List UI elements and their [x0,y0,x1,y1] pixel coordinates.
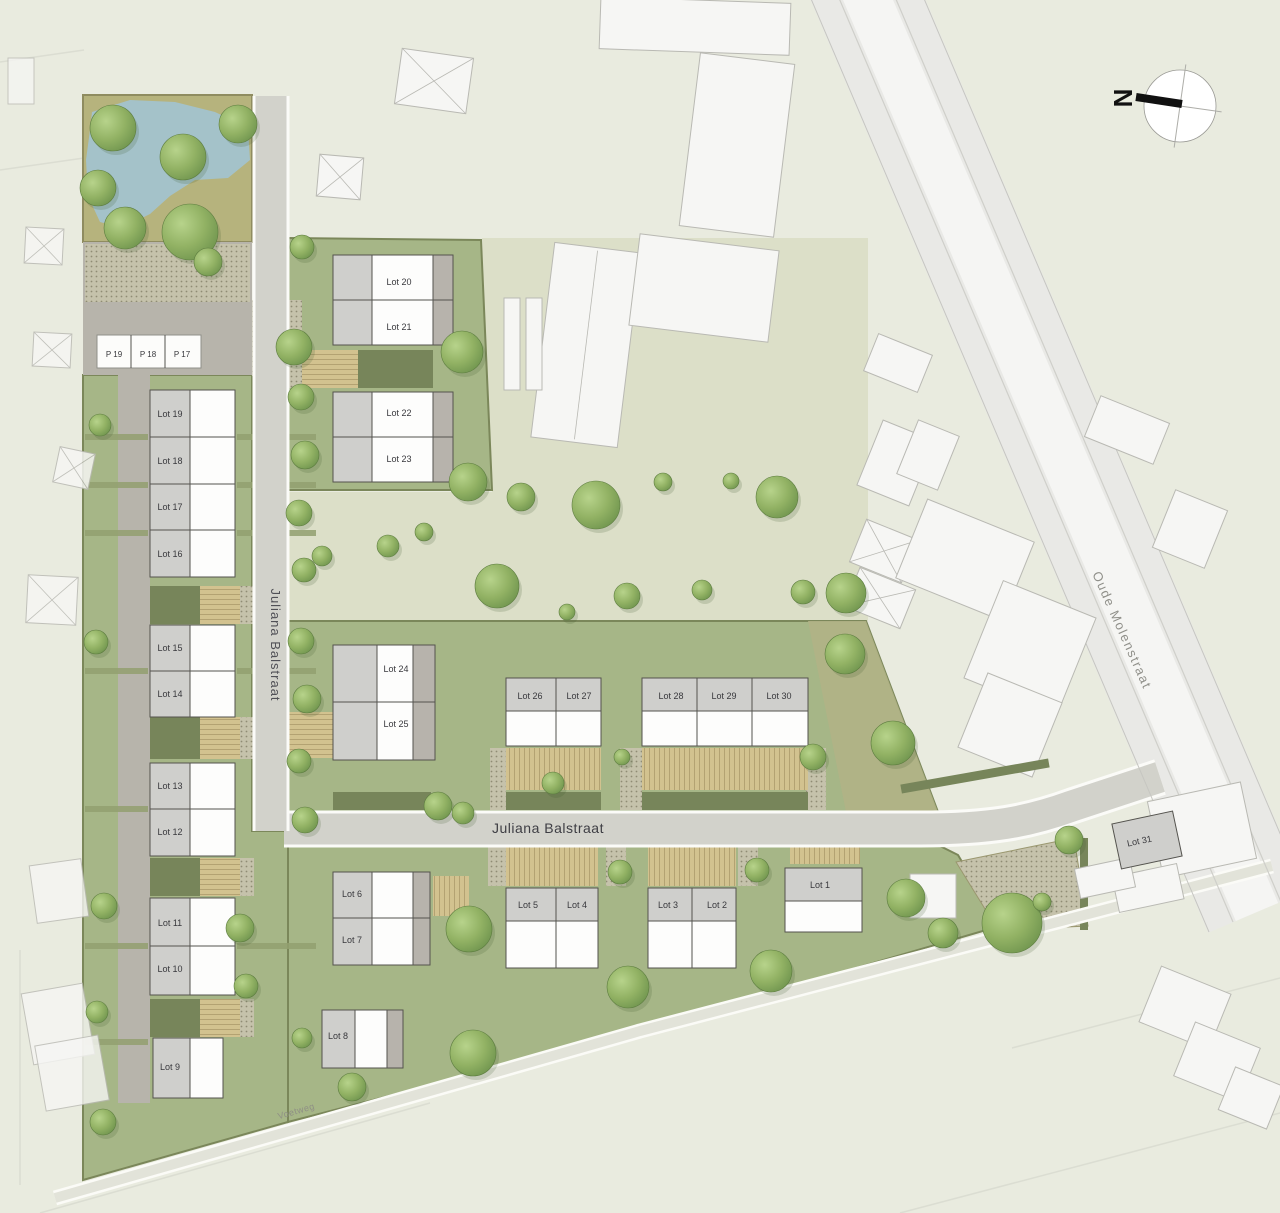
paver-area [85,244,250,302]
tree [292,558,316,582]
building-lot-1 [785,901,862,932]
street-label-horizontal: Juliana Balstraat [492,820,604,836]
tree [286,500,312,526]
tree [160,134,206,180]
tree [84,630,108,654]
building-lots-26-27 [506,711,601,746]
lot-label: Lot 13 [157,781,182,791]
existing-building [526,298,542,390]
tree [415,523,433,541]
deck [506,846,598,886]
existing-building [35,1035,109,1111]
gravel-strip [240,717,254,759]
existing-building [29,859,89,924]
tree [1055,826,1083,854]
deck [642,748,808,790]
building-lot-8 [355,1010,387,1068]
existing-building [599,0,791,55]
tree [542,772,564,794]
lot-label: Lot 26 [517,691,542,701]
tree [756,476,798,518]
lot-label: Lot 16 [157,549,182,559]
existing-building [32,332,72,368]
lot-label: Lot 10 [157,964,182,974]
north-label: N [1108,89,1138,108]
tree [507,483,535,511]
lot-label: Lot 17 [157,502,182,512]
tree [450,1030,496,1076]
tree [293,685,321,713]
tree [871,721,915,765]
tree [291,441,319,469]
lot-label: Lot 3 [658,900,678,910]
lot-label: Lot 30 [766,691,791,701]
tree [338,1073,366,1101]
parking-label: P 19 [106,350,123,359]
existing-building [8,58,34,104]
building-lots-28-30 [642,711,808,746]
tree [104,207,146,249]
tree [288,628,314,654]
lot-label: Lot 19 [157,409,182,419]
building-lot-8 [387,1010,403,1068]
existing-building [53,447,96,490]
tree [826,573,866,613]
lot-label: Lot 20 [386,277,411,287]
existing-building [26,575,78,626]
tree [226,914,254,942]
tree [89,414,111,436]
parking-label: P 18 [140,350,157,359]
lot-label: Lot 11 [158,918,182,928]
tree [90,105,136,151]
building-lots-5-4 [506,921,598,968]
tree [800,744,826,770]
tree [90,1109,116,1135]
tree [80,170,116,206]
hedge [333,792,431,810]
hedge [150,586,200,624]
lot-label: Lot 24 [383,664,408,674]
lot-label: Lot 18 [157,456,182,466]
lot-label: Lot 29 [711,691,736,701]
existing-building [629,234,779,342]
tree [654,473,672,491]
lot-label: Lot 14 [157,689,182,699]
deck [200,717,240,759]
site-plan: Lot 1Lot 2Lot 3Lot 4Lot 5Lot 6Lot 7Lot 8… [0,0,1280,1213]
gravel-strip [240,858,254,896]
lot-label: Lot 7 [342,935,362,945]
existing-building [679,53,794,237]
gravel-strip [240,999,254,1037]
deck [200,999,240,1037]
gravel-strip [490,748,506,810]
tree [475,564,519,608]
gravel-strip [240,586,254,624]
lot-label: Lot 5 [518,900,538,910]
tree [194,248,222,276]
tree [446,906,492,952]
existing-building [504,298,520,390]
lot-label: Lot 27 [566,691,591,701]
tree [887,879,925,917]
tree [91,893,117,919]
tree [928,918,958,948]
lot-label: Lot 1 [810,880,830,890]
lot-label: Lot 21 [386,322,411,332]
hedge [642,792,808,810]
tree [1033,893,1051,911]
lot-label: Lot 28 [658,691,683,701]
tree [607,966,649,1008]
parking-label: P 17 [174,350,191,359]
tree [614,749,630,765]
street-label-vertical: Juliana Balstraat [268,588,283,701]
tree [750,950,792,992]
lot-label: Lot 2 [707,900,727,910]
tree [559,604,575,620]
tree [692,580,712,600]
tree [723,473,739,489]
existing-building [316,154,363,200]
tree [290,235,314,259]
tree [234,974,258,998]
gravel-strip [488,846,506,886]
tree [86,1001,108,1023]
hedge [150,717,200,759]
existing-building [394,48,473,113]
tree [441,331,483,373]
hedge [150,858,200,896]
tree [614,583,640,609]
tree [288,384,314,410]
tree [452,802,474,824]
building-lot-9 [190,1038,223,1098]
tree [219,105,257,143]
lot-label: Lot 23 [386,454,411,464]
tree [377,535,399,557]
tree [825,634,865,674]
lot-label: Lot 4 [567,900,587,910]
lot-label: Lot 25 [383,719,408,729]
tree [572,481,620,529]
lot-label: Lot 9 [160,1062,180,1072]
tree [791,580,815,604]
deck [648,846,736,886]
tree [608,860,632,884]
tree [287,749,311,773]
existing-building [24,227,64,265]
deck [200,858,240,896]
hedge [358,350,433,388]
lot-label: Lot 22 [386,408,411,418]
tree [424,792,452,820]
lot-label: Lot 15 [157,643,182,653]
tree [449,463,487,501]
tree [292,1028,312,1048]
tree [276,329,312,365]
tree [745,858,769,882]
lot-label: Lot 8 [328,1031,348,1041]
tree [312,546,332,566]
hedge [150,999,200,1037]
lot-label: Lot 6 [342,889,362,899]
tree [292,807,318,833]
deck [790,846,860,864]
lot-label: Lot 12 [157,827,182,837]
deck [200,586,240,624]
site-plan-svg: Lot 1Lot 2Lot 3Lot 4Lot 5Lot 6Lot 7Lot 8… [0,0,1280,1213]
